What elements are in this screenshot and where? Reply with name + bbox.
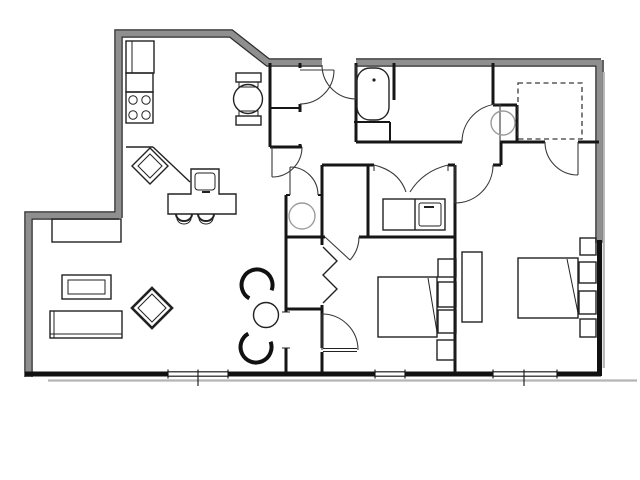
bedroom-label: BEDROOM (366, 248, 430, 262)
master-nightstand-bottom (580, 319, 596, 337)
entry-closet-door-upper (300, 70, 334, 104)
bedroom-pillow-1 (438, 282, 456, 307)
stove (126, 92, 153, 123)
walk-in-closet-label-line2: CLOSET (527, 111, 577, 125)
entry-closet-door-lower (272, 147, 302, 177)
coffee-table (62, 275, 111, 299)
bedroom-door-south (322, 314, 358, 350)
exterior-walls (25, 34, 637, 381)
bathtub (357, 68, 389, 120)
master-bedroom-dimensions: 19'-1" x 11'-6" (496, 210, 566, 223)
bedroom-dimensions: 11'-7" x 11'-5" (365, 263, 435, 276)
floor-plan: KITCHEN 12'-11" x 12'-2" BATHROOM WALK-I… (0, 0, 640, 480)
corner-counter (126, 147, 190, 184)
bedroom-closet-bifold-doors (323, 247, 337, 303)
bathroom-walls (356, 63, 599, 142)
bedroom-bed (378, 277, 437, 337)
armchairs-and-side-table (241, 269, 279, 362)
bedroom-window (375, 369, 405, 379)
interior-walls (270, 63, 599, 373)
walk-in-closet-label-line1: WALK-IN (526, 96, 577, 110)
living-room-label: LIVING ROOM (132, 257, 215, 271)
bedroom-pillow-2 (438, 310, 456, 333)
water-heater (289, 203, 315, 229)
master-nightstand-top (580, 238, 596, 255)
bedroom-door-north (325, 237, 359, 260)
bedroom-nightstand-top (438, 259, 456, 277)
walk-in-closet-door (545, 142, 578, 175)
washer-dryer (383, 199, 445, 230)
bedroom-nightstand-bottom (437, 340, 455, 360)
master-pillow-2 (579, 291, 596, 314)
living-room-window (168, 369, 228, 386)
bedroom-furniture (378, 259, 456, 360)
kitchen-fixtures (126, 41, 263, 224)
living-room-dimensions: 14'-8" x 21'-5" (138, 272, 209, 285)
master-bedroom-door (455, 165, 493, 203)
kitchen-counter (126, 73, 153, 92)
bathroom-label: BATHROOM (408, 90, 479, 104)
master-pillow-1 (579, 262, 596, 283)
room-labels: KITCHEN 12'-11" x 12'-2" BATHROOM WALK-I… (132, 90, 590, 285)
master-bedroom-window (493, 369, 557, 386)
kitchen-closet-walls (270, 63, 302, 147)
hall-and-laundry-walls (322, 142, 501, 373)
bar-stools (176, 214, 214, 224)
armchair-top (242, 269, 273, 298)
sofa (50, 311, 122, 338)
kitchen-island-sink (168, 169, 236, 214)
utility-closet-door (290, 167, 318, 195)
kitchen-dimensions: 12'-11" x 12'-2" (165, 139, 242, 152)
bathroom-door (462, 104, 500, 142)
master-bedroom-furniture (462, 238, 596, 337)
living-room-furniture (50, 219, 279, 363)
walk-in-closet-outline (518, 83, 582, 139)
master-dresser (462, 252, 482, 322)
refrigerator (126, 41, 154, 73)
armchair-bottom (241, 334, 272, 363)
bathroom-sink (491, 111, 515, 135)
exterior-wall-outline (29, 34, 602, 378)
side-table (254, 303, 279, 328)
hallway-walls (286, 165, 322, 373)
dining-table (234, 73, 263, 125)
console-table (52, 219, 121, 242)
kitchen-label: KITCHEN (173, 124, 227, 138)
master-bedroom-label: MASTER BEDROOM (470, 195, 589, 209)
accent-chair (132, 288, 172, 328)
laundry-double-doors (374, 165, 448, 192)
